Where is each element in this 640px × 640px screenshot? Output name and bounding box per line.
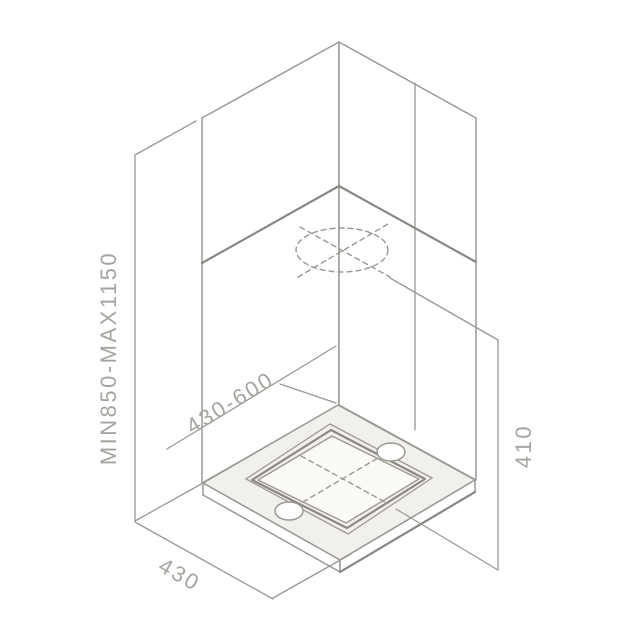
dim-height-ext-bottom bbox=[135, 483, 203, 521]
technical-diagram-canvas: MIN850-MAX1150 430-600 410 430 bbox=[0, 0, 640, 640]
dim-body-height-ext-bottom bbox=[396, 509, 498, 570]
chimney-right-face bbox=[339, 42, 476, 480]
lamp-front-left bbox=[275, 502, 303, 520]
dim-depth-ext bbox=[273, 554, 351, 598]
diagram-container: MIN850-MAX1150 430-600 410 430 bbox=[0, 0, 640, 640]
dim-depth-line bbox=[135, 522, 273, 599]
label-height-range: MIN850-MAX1150 bbox=[96, 251, 121, 465]
label-depth: 430 bbox=[154, 553, 205, 597]
label-body-height: 410 bbox=[511, 424, 536, 468]
dim-height-ext-top bbox=[135, 121, 196, 155]
dim-height-range bbox=[135, 121, 203, 521]
lamp-back-right bbox=[377, 443, 405, 461]
